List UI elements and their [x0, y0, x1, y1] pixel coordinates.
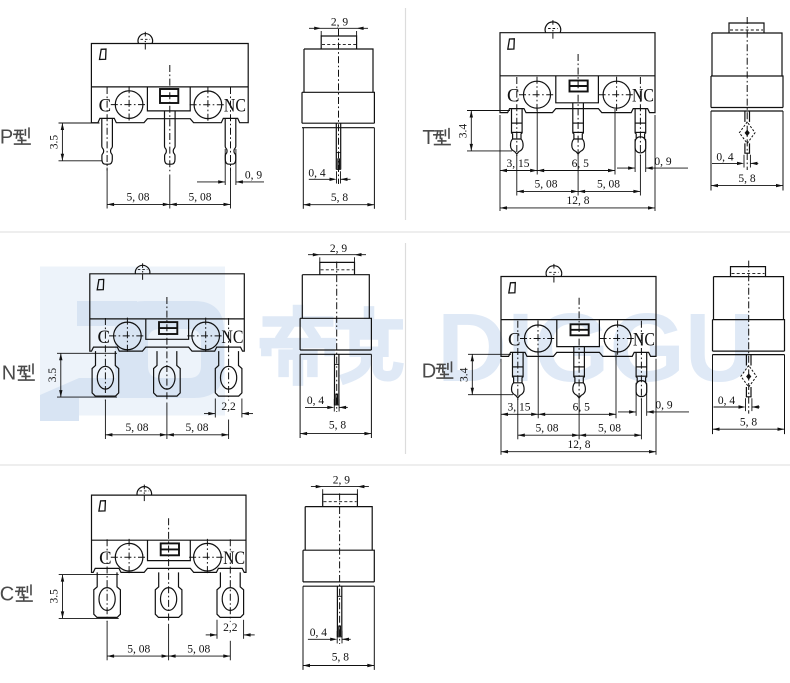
svg-text:0, 9: 0, 9	[245, 170, 263, 182]
svg-text:NC: NC	[632, 86, 654, 107]
svg-text:2, 9: 2, 9	[330, 243, 348, 255]
svg-text:3.5: 3.5	[49, 589, 61, 604]
svg-text:5, 08: 5, 08	[127, 643, 150, 655]
svg-text:C: C	[99, 96, 112, 117]
svg-text:5, 08: 5, 08	[535, 179, 558, 191]
svg-text:5, 08: 5, 08	[186, 422, 209, 434]
svg-text:6, 5: 6, 5	[573, 402, 591, 414]
svg-text:2,2: 2,2	[221, 401, 236, 413]
svg-text:6, 5: 6, 5	[572, 158, 590, 170]
svg-text:12, 8: 12, 8	[568, 439, 591, 451]
svg-text:T: T	[422, 127, 434, 149]
svg-text:3.5: 3.5	[47, 368, 59, 383]
svg-text:2, 9: 2, 9	[333, 475, 351, 487]
svg-text:5, 08: 5, 08	[598, 422, 621, 434]
svg-text:5, 8: 5, 8	[738, 173, 756, 185]
svg-text:5, 8: 5, 8	[329, 420, 347, 432]
svg-text:NC: NC	[221, 327, 243, 348]
svg-text:3, 15: 3, 15	[507, 158, 530, 170]
svg-text:5, 8: 5, 8	[740, 417, 758, 429]
svg-text:NC: NC	[224, 96, 246, 117]
svg-text:0, 9: 0, 9	[655, 400, 673, 412]
svg-text:D: D	[422, 361, 436, 383]
svg-text:P: P	[0, 127, 13, 149]
svg-text:5, 08: 5, 08	[189, 192, 212, 204]
svg-text:2,2: 2,2	[223, 622, 238, 634]
svg-text:0, 4: 0, 4	[718, 395, 736, 407]
svg-text:0, 9: 0, 9	[654, 156, 672, 168]
svg-text:5, 08: 5, 08	[536, 422, 559, 434]
svg-text:5, 08: 5, 08	[127, 192, 150, 204]
svg-text:12, 8: 12, 8	[567, 195, 590, 207]
svg-text:5, 08: 5, 08	[187, 643, 210, 655]
svg-text:3.4: 3.4	[457, 124, 469, 139]
svg-text:0, 4: 0, 4	[308, 168, 326, 180]
svg-text:C: C	[99, 548, 112, 569]
svg-text:0, 4: 0, 4	[716, 151, 734, 163]
svg-text:0, 4: 0, 4	[307, 395, 325, 407]
svg-text:5, 08: 5, 08	[126, 422, 149, 434]
svg-text:3.4: 3.4	[458, 367, 470, 382]
svg-text:C: C	[507, 86, 520, 107]
svg-text:0, 4: 0, 4	[310, 627, 328, 639]
svg-text:C: C	[0, 584, 14, 606]
svg-text:3, 15: 3, 15	[508, 402, 531, 414]
svg-text:N: N	[2, 363, 16, 385]
svg-text:5, 08: 5, 08	[597, 179, 620, 191]
svg-text:C: C	[97, 327, 110, 348]
svg-text:5, 8: 5, 8	[331, 192, 349, 204]
svg-text:5, 8: 5, 8	[332, 651, 350, 663]
svg-text:2, 9: 2, 9	[331, 17, 349, 29]
svg-text:C: C	[508, 329, 521, 350]
svg-text:3.5: 3.5	[49, 135, 61, 150]
svg-text:NC: NC	[223, 548, 245, 569]
svg-text:NC: NC	[633, 329, 655, 350]
svg-text:DIGGU: DIGGU	[437, 293, 755, 402]
